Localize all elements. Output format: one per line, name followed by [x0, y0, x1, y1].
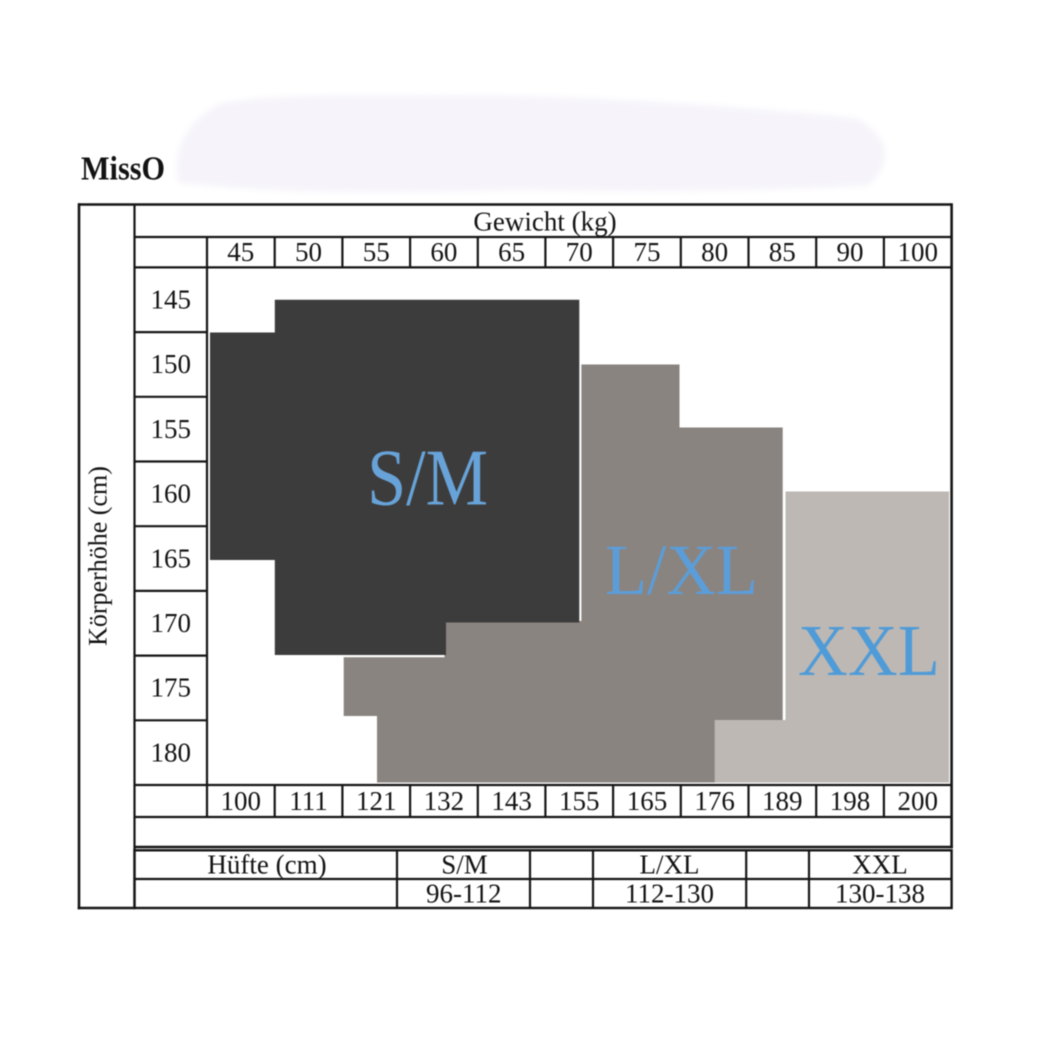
svg-text:S/M: S/M [441, 849, 488, 879]
svg-text:180: 180 [150, 737, 191, 767]
svg-text:MissO: MissO [81, 151, 165, 188]
svg-text:55: 55 [363, 237, 390, 267]
svg-text:198: 198 [830, 786, 871, 816]
svg-text:70: 70 [566, 237, 593, 267]
svg-text:155: 155 [150, 414, 191, 444]
svg-text:143: 143 [491, 786, 532, 816]
svg-text:S/M: S/M [367, 435, 488, 523]
svg-text:189: 189 [762, 786, 803, 816]
svg-text:Körperhöhe (cm): Körperhöhe (cm) [84, 466, 113, 646]
svg-text:175: 175 [150, 673, 191, 703]
svg-text:45: 45 [227, 237, 254, 267]
svg-text:100: 100 [221, 786, 262, 816]
svg-text:85: 85 [769, 237, 796, 267]
svg-text:XXL: XXL [852, 849, 908, 879]
svg-text:165: 165 [150, 543, 191, 573]
svg-text:50: 50 [295, 237, 322, 267]
svg-text:121: 121 [356, 786, 397, 816]
svg-text:150: 150 [150, 349, 191, 379]
svg-text:145: 145 [150, 285, 191, 315]
svg-text:60: 60 [430, 237, 457, 267]
svg-text:65: 65 [498, 237, 525, 267]
svg-text:Gewicht (kg): Gewicht (kg) [473, 207, 616, 237]
svg-text:111: 111 [289, 786, 328, 816]
svg-text:90: 90 [837, 237, 864, 267]
svg-text:100: 100 [897, 237, 938, 267]
svg-text:XXL: XXL [798, 610, 940, 691]
svg-text:Hüfte (cm): Hüfte (cm) [207, 849, 326, 879]
svg-text:160: 160 [150, 479, 191, 509]
svg-text:132: 132 [424, 786, 465, 816]
svg-text:170: 170 [150, 608, 191, 638]
svg-text:96-112: 96-112 [426, 878, 502, 908]
svg-text:200: 200 [897, 786, 938, 816]
svg-text:80: 80 [701, 237, 728, 267]
svg-text:155: 155 [559, 786, 600, 816]
svg-text:75: 75 [634, 237, 661, 267]
svg-text:L/XL: L/XL [605, 530, 758, 610]
svg-text:165: 165 [627, 786, 668, 816]
svg-text:L/XL: L/XL [640, 849, 700, 879]
svg-text:112-130: 112-130 [625, 878, 714, 908]
svg-text:130-138: 130-138 [835, 878, 925, 908]
svg-text:176: 176 [694, 786, 735, 816]
